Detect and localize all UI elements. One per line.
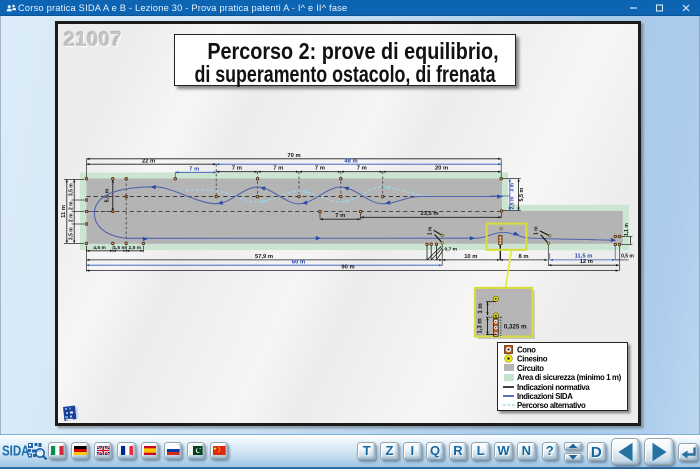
svg-text:1 m: 1 m xyxy=(534,226,540,235)
svg-text:3 m: 3 m xyxy=(509,182,515,191)
svg-text:48 m: 48 m xyxy=(344,158,357,164)
svg-text:2,5 m: 2,5 m xyxy=(129,245,142,251)
svg-text:10 m: 10 m xyxy=(464,254,477,260)
svg-text:2 m: 2 m xyxy=(68,213,74,222)
svg-text:3,5 m: 3,5 m xyxy=(68,183,74,196)
svg-text:0,5 m: 0,5 m xyxy=(621,254,634,260)
svg-text:70 m: 70 m xyxy=(287,153,300,159)
svg-text:1,1 m: 1,1 m xyxy=(624,223,630,236)
svg-text:0,325 m: 0,325 m xyxy=(504,323,527,330)
svg-text:22 m: 22 m xyxy=(142,158,155,164)
svg-text:1 m: 1 m xyxy=(478,303,484,313)
svg-text:60 m: 60 m xyxy=(292,259,305,265)
svg-text:7 m: 7 m xyxy=(273,166,283,172)
svg-text:5,5 m: 5,5 m xyxy=(519,188,525,202)
svg-text:20 m: 20 m xyxy=(435,166,448,172)
svg-text:2 m: 2 m xyxy=(68,201,74,210)
svg-text:7 m: 7 m xyxy=(357,166,367,172)
svg-text:2,5 m: 2,5 m xyxy=(509,196,515,209)
svg-text:23,5 m: 23,5 m xyxy=(420,211,438,217)
svg-text:1 m: 1 m xyxy=(428,226,434,235)
svg-text:7 m: 7 m xyxy=(189,166,199,172)
svg-text:7 m: 7 m xyxy=(232,166,242,172)
svg-text:7 m: 7 m xyxy=(335,213,345,219)
svg-text:90 m: 90 m xyxy=(341,265,354,271)
svg-text:11 m: 11 m xyxy=(61,205,67,218)
svg-text:1,5 m: 1,5 m xyxy=(113,245,126,251)
svg-text:3,5 m: 3,5 m xyxy=(68,227,74,240)
svg-text:12 m: 12 m xyxy=(580,259,593,265)
svg-text:4,5 m: 4,5 m xyxy=(93,245,106,251)
svg-text:7 m: 7 m xyxy=(315,166,325,172)
svg-text:1,3 m: 1,3 m xyxy=(477,318,483,333)
svg-text:57,9 m: 57,9 m xyxy=(255,254,273,260)
svg-text:8 m: 8 m xyxy=(519,254,529,260)
svg-text:0,7 m: 0,7 m xyxy=(445,247,458,253)
